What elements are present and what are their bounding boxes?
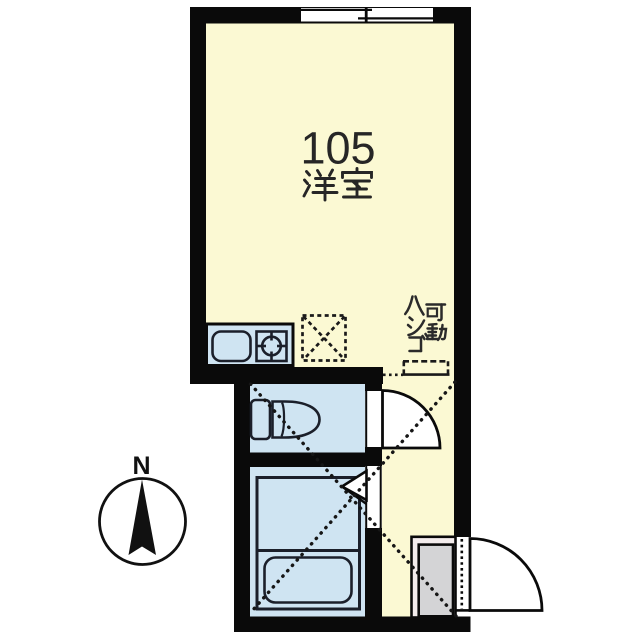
svg-text:N: N (132, 452, 150, 480)
svg-text:105: 105 (300, 123, 375, 174)
